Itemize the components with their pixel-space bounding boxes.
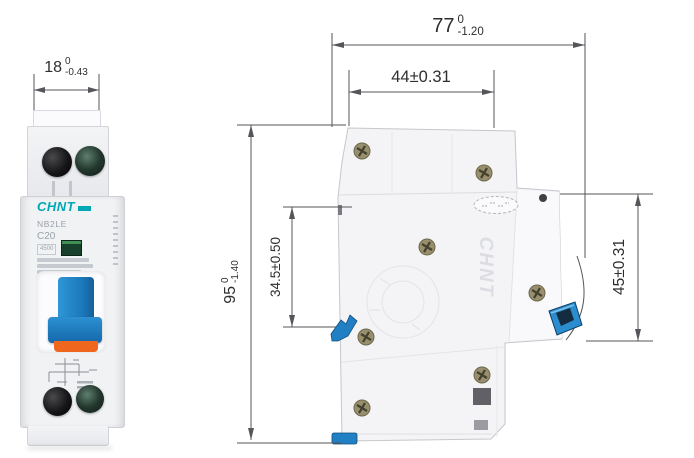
terminal-screw-icon bbox=[76, 385, 104, 413]
brand-logo: CHNT bbox=[37, 200, 91, 213]
toggle-orange-indicator bbox=[54, 341, 98, 352]
tolerance-lower: -0.43 bbox=[65, 68, 88, 79]
top-terminal-block bbox=[27, 126, 109, 200]
rivet-screw bbox=[354, 400, 370, 416]
total-depth-dimension: 77 0 -1.20 bbox=[396, 14, 520, 38]
height-dimension: 95 0 -1.40 bbox=[218, 224, 244, 340]
dimension-value: 45±0.31 bbox=[612, 239, 628, 295]
model-label: NB2LE bbox=[37, 219, 67, 229]
brand-logo-text: CHNT bbox=[37, 200, 75, 213]
side-markings-column bbox=[113, 215, 118, 269]
dimension-nominal: 18 bbox=[44, 60, 62, 76]
bottom-terminal-block bbox=[27, 426, 109, 446]
small-screw bbox=[539, 194, 547, 202]
rivet-screw bbox=[354, 143, 370, 159]
rating-label: C20 bbox=[37, 231, 55, 242]
breaker-side-photo bbox=[331, 128, 584, 444]
tolerance-lower: -1.20 bbox=[458, 26, 484, 38]
embossed-brand-text: CHNT bbox=[473, 212, 497, 322]
rivet-screw bbox=[358, 329, 374, 345]
fine-print-bar bbox=[37, 258, 89, 262]
device-shadow bbox=[28, 446, 112, 450]
rivet-screw bbox=[474, 367, 490, 383]
dimension-nominal: 95 bbox=[223, 286, 239, 304]
bottom-clip bbox=[332, 433, 357, 444]
breaker-front-photo: CHNT NB2LE C20 4500 bbox=[20, 110, 123, 445]
breaking-capacity-badge: 4500 bbox=[37, 244, 56, 255]
terminal-screw-icon bbox=[43, 387, 72, 416]
recess-vent-light bbox=[474, 420, 488, 430]
dimension-value: 44±0.31 bbox=[391, 69, 451, 86]
tolerance-lower: -1.40 bbox=[231, 260, 242, 283]
front-height-dimension: 45±0.31 bbox=[609, 209, 631, 325]
terminal-marking bbox=[52, 181, 72, 196]
recess-vent-dark bbox=[473, 388, 491, 405]
terminal-screw-icon bbox=[42, 147, 72, 177]
rivet-screw bbox=[476, 165, 492, 181]
tolerance-upper: 0 bbox=[458, 14, 484, 26]
fine-print-bar bbox=[37, 264, 93, 268]
trip-indicator-window bbox=[61, 240, 82, 256]
mount-depth-dimension: 44±0.31 bbox=[359, 69, 483, 86]
rivet-screw bbox=[529, 285, 545, 301]
breaker-front-body: CHNT NB2LE C20 4500 bbox=[20, 196, 125, 428]
toggle-recess bbox=[36, 271, 106, 353]
dimension-drawing-canvas: CHNT 18 0 -0.43 77 0 -1.20 44±0.31 95 0 … bbox=[0, 0, 694, 458]
terminal-screw-icon bbox=[75, 146, 105, 176]
toggle-switch-base bbox=[48, 317, 102, 343]
front-width-dimension: 18 0 -0.43 bbox=[26, 57, 106, 78]
emboss-oval-stamp bbox=[474, 197, 518, 214]
tolerance-upper: 0 bbox=[65, 57, 88, 68]
rail-offset-dimension: 34.5±0.50 bbox=[266, 208, 286, 326]
dimension-nominal: 77 bbox=[432, 16, 454, 36]
dimension-value: 34.5±0.50 bbox=[269, 237, 283, 297]
rivet-screw bbox=[419, 239, 435, 255]
brand-logo-dash bbox=[78, 206, 91, 211]
